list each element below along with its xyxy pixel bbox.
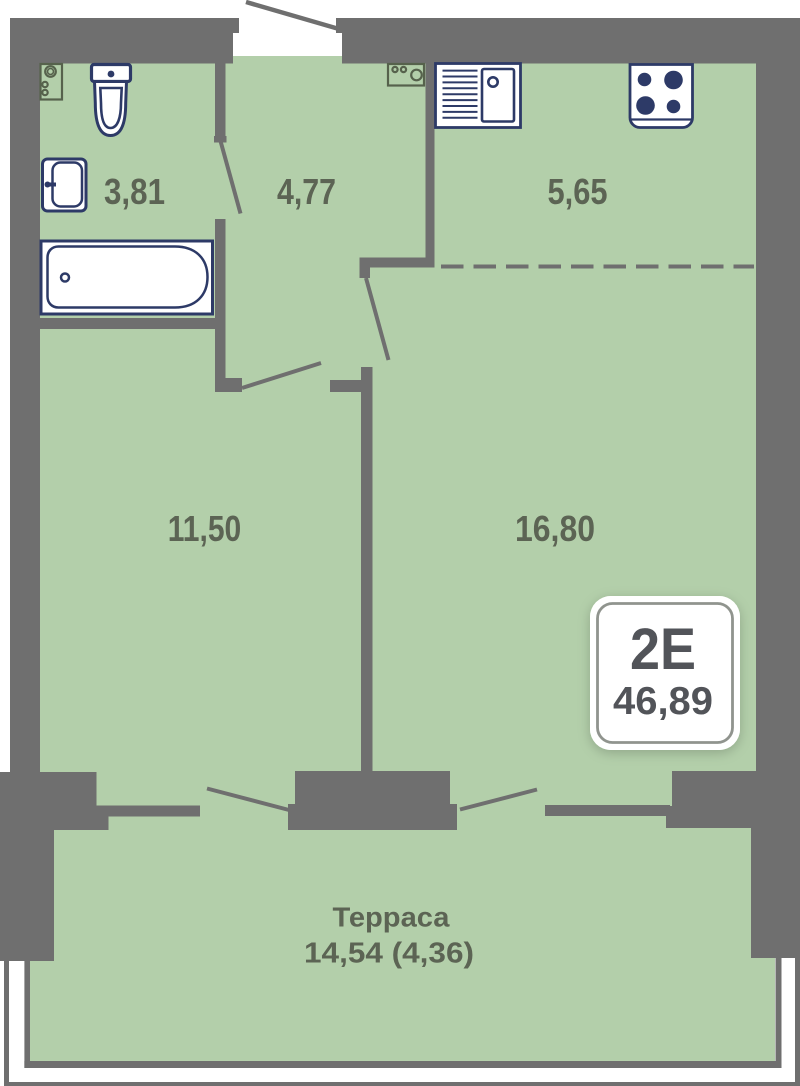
svg-text:46,89: 46,89 <box>613 680 713 723</box>
svg-text:4,77: 4,77 <box>277 171 336 212</box>
svg-text:16,80: 16,80 <box>515 508 595 549</box>
svg-text:11,50: 11,50 <box>168 508 242 549</box>
svg-text:3,81: 3,81 <box>104 171 165 212</box>
svg-text:2E: 2E <box>630 617 696 682</box>
svg-text:14,54 (4,36): 14,54 (4,36) <box>304 938 474 970</box>
svg-text:5,65: 5,65 <box>548 171 608 212</box>
svg-text:Терраса: Терраса <box>333 902 451 933</box>
